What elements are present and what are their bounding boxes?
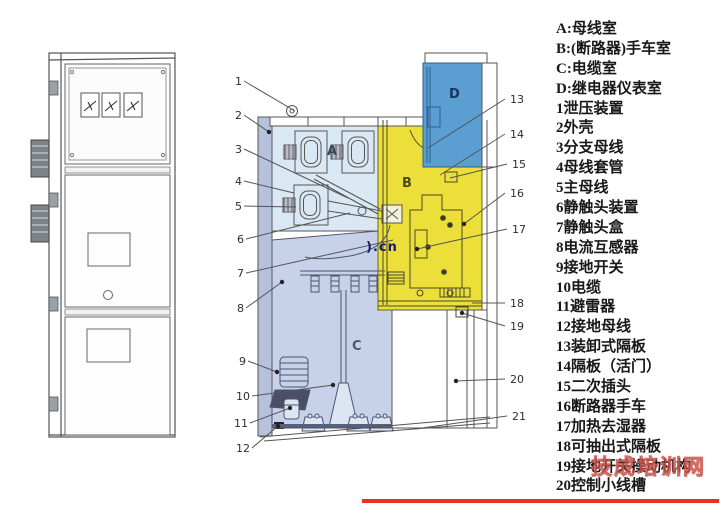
callout-16: 16 — [510, 187, 524, 200]
legend-item: 1泄压装置 — [556, 100, 720, 120]
legend-item: 10电缆 — [556, 279, 720, 299]
callout-15: 15 — [512, 158, 526, 171]
legend: A:母线室 B:(断路器)手车室 C:电缆室 D:继电器仪表室 1泄压装置 2外… — [556, 20, 720, 497]
legend-item: 8电流互感器 — [556, 239, 720, 259]
callout-1: 1 — [235, 75, 242, 88]
legend-item: A:母线室 — [556, 20, 720, 40]
callout-13: 13 — [510, 93, 524, 106]
callout-3: 3 — [235, 143, 242, 156]
panel-meter-icons — [81, 93, 142, 117]
legend-item: 15二次插头 — [556, 378, 720, 398]
legend-item: C:电缆室 — [556, 60, 720, 80]
callout-19: 19 — [510, 320, 524, 333]
legend-item: 5主母线 — [556, 179, 720, 199]
callout-18: 18 — [510, 297, 524, 310]
legend-item: B:(断路器)手车室 — [556, 40, 720, 60]
legend-item: 4母线套管 — [556, 159, 720, 179]
cabinet-section-view: 1 2 3 4 5 6 7 8 9 10 11 12 13 14 15 16 1… — [210, 35, 555, 480]
red-underline — [362, 499, 719, 503]
compartment-a-label: A — [327, 144, 337, 159]
middle-door — [65, 175, 170, 307]
cabinet-front-view — [28, 45, 188, 445]
legend-item: 17加热去湿器 — [556, 418, 720, 438]
legend-item: 3分支母线 — [556, 139, 720, 159]
legend-item: 11避雷器 — [556, 298, 720, 318]
legend-item: 9接地开关 — [556, 259, 720, 279]
legend-item: 16断路器手车 — [556, 398, 720, 418]
callout-2: 2 — [235, 109, 242, 122]
cabinet-handles — [31, 140, 49, 242]
watermark-brand: 技成培训网 — [591, 451, 706, 481]
legend-item: 13装卸式隔板 — [556, 338, 720, 358]
diagram-page: 1 2 3 4 5 6 7 8 9 10 11 12 13 14 15 16 1… — [0, 0, 720, 506]
legend-item: 7静触头盒 — [556, 219, 720, 239]
lower-front-compartment — [392, 310, 487, 428]
relay-instrument-box — [423, 53, 497, 167]
callout-9: 9 — [239, 355, 246, 368]
callout-12: 12 — [236, 442, 250, 455]
callout-numbers-left: 1 2 3 4 5 6 7 8 9 10 11 12 — [234, 75, 250, 455]
watermark-cn: ).cn — [366, 240, 398, 255]
callout-17: 17 — [512, 223, 526, 236]
callout-11: 11 — [234, 417, 248, 430]
callout-8: 8 — [237, 302, 244, 315]
callout-7: 7 — [237, 267, 244, 280]
roof-pressure-relief — [270, 106, 423, 127]
callout-4: 4 — [235, 175, 242, 188]
legend-item: 6静触头装置 — [556, 199, 720, 219]
compartment-c-label: C — [352, 339, 362, 354]
callout-14: 14 — [510, 128, 524, 141]
compartment-d-label: D — [449, 87, 460, 102]
legend-item: 14隔板（活门） — [556, 358, 720, 378]
outer-shell — [258, 117, 272, 436]
legend-item: 12接地母线 — [556, 318, 720, 338]
callout-10: 10 — [236, 390, 250, 403]
callout-21: 21 — [512, 410, 526, 423]
bottom-door — [65, 317, 170, 435]
callout-20: 20 — [510, 373, 524, 386]
callout-5: 5 — [235, 200, 242, 213]
callout-6: 6 — [237, 233, 244, 246]
callout-numbers-right: 13 14 15 16 17 18 19 20 21 — [510, 93, 526, 423]
legend-item: 2外壳 — [556, 119, 720, 139]
legend-item: D:继电器仪表室 — [556, 80, 720, 100]
compartment-b-label: B — [402, 176, 412, 191]
